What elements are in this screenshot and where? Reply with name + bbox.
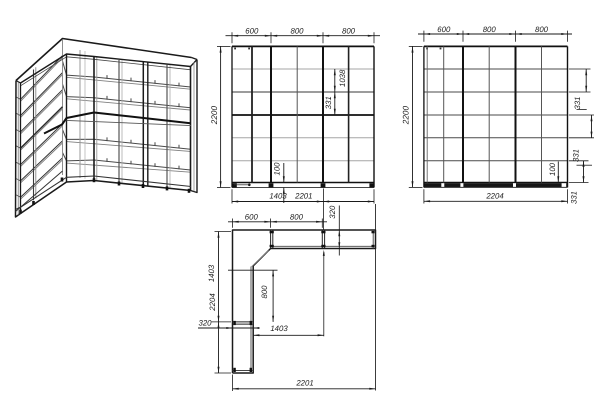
- svg-text:1403: 1403: [207, 264, 216, 282]
- svg-text:331: 331: [573, 96, 582, 109]
- svg-text:331: 331: [324, 96, 333, 109]
- svg-text:331: 331: [570, 191, 579, 204]
- svg-text:2204: 2204: [485, 192, 504, 201]
- svg-text:1403: 1403: [269, 192, 287, 201]
- svg-text:800: 800: [290, 27, 304, 36]
- svg-text:600: 600: [437, 25, 451, 34]
- svg-text:800: 800: [260, 285, 269, 299]
- svg-text:100: 100: [273, 162, 282, 176]
- svg-text:2204: 2204: [208, 293, 217, 312]
- svg-text:320: 320: [198, 318, 212, 327]
- svg-text:2200: 2200: [210, 106, 219, 126]
- svg-text:100: 100: [548, 162, 557, 176]
- svg-text:600: 600: [245, 27, 259, 36]
- svg-text:800: 800: [290, 213, 304, 222]
- svg-text:2201: 2201: [295, 378, 313, 387]
- svg-text:800: 800: [535, 25, 549, 34]
- svg-text:1038: 1038: [338, 69, 347, 87]
- svg-text:800: 800: [342, 27, 356, 36]
- svg-text:1403: 1403: [270, 324, 288, 333]
- svg-text:2200: 2200: [401, 106, 410, 126]
- svg-text:800: 800: [483, 25, 497, 34]
- svg-text:600: 600: [245, 213, 259, 222]
- svg-text:331: 331: [572, 149, 581, 162]
- svg-text:2201: 2201: [294, 192, 312, 201]
- svg-text:320: 320: [328, 205, 337, 219]
